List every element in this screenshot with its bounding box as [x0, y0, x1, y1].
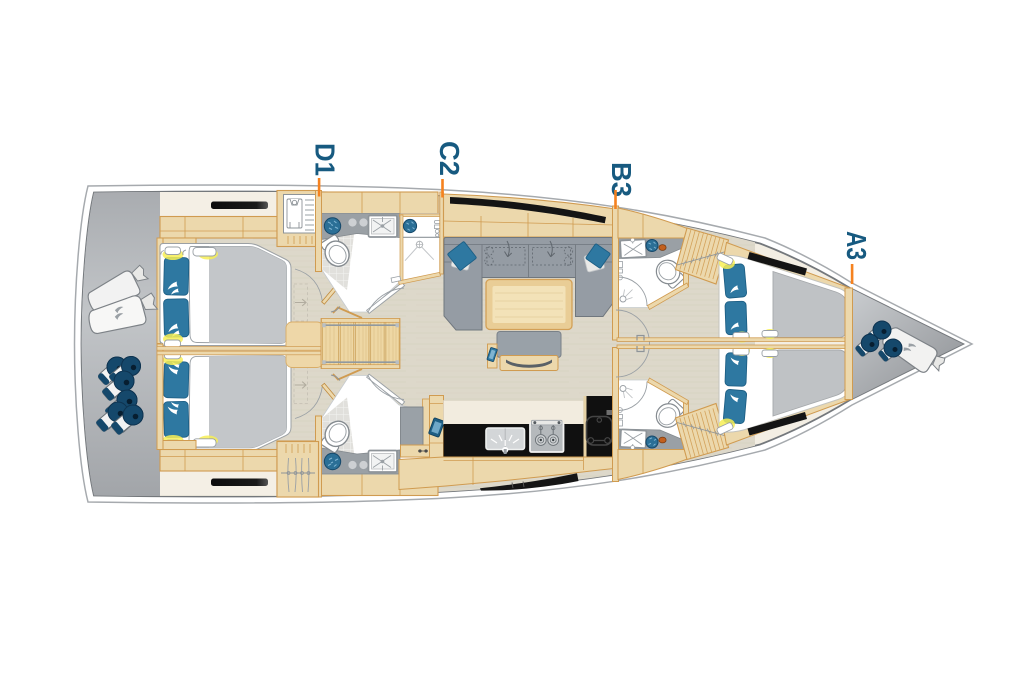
svg-text:D1: D1 — [310, 143, 341, 176]
svg-text:B3: B3 — [606, 162, 637, 197]
svg-text:A3: A3 — [841, 231, 872, 260]
svg-text:C2: C2 — [434, 141, 465, 176]
